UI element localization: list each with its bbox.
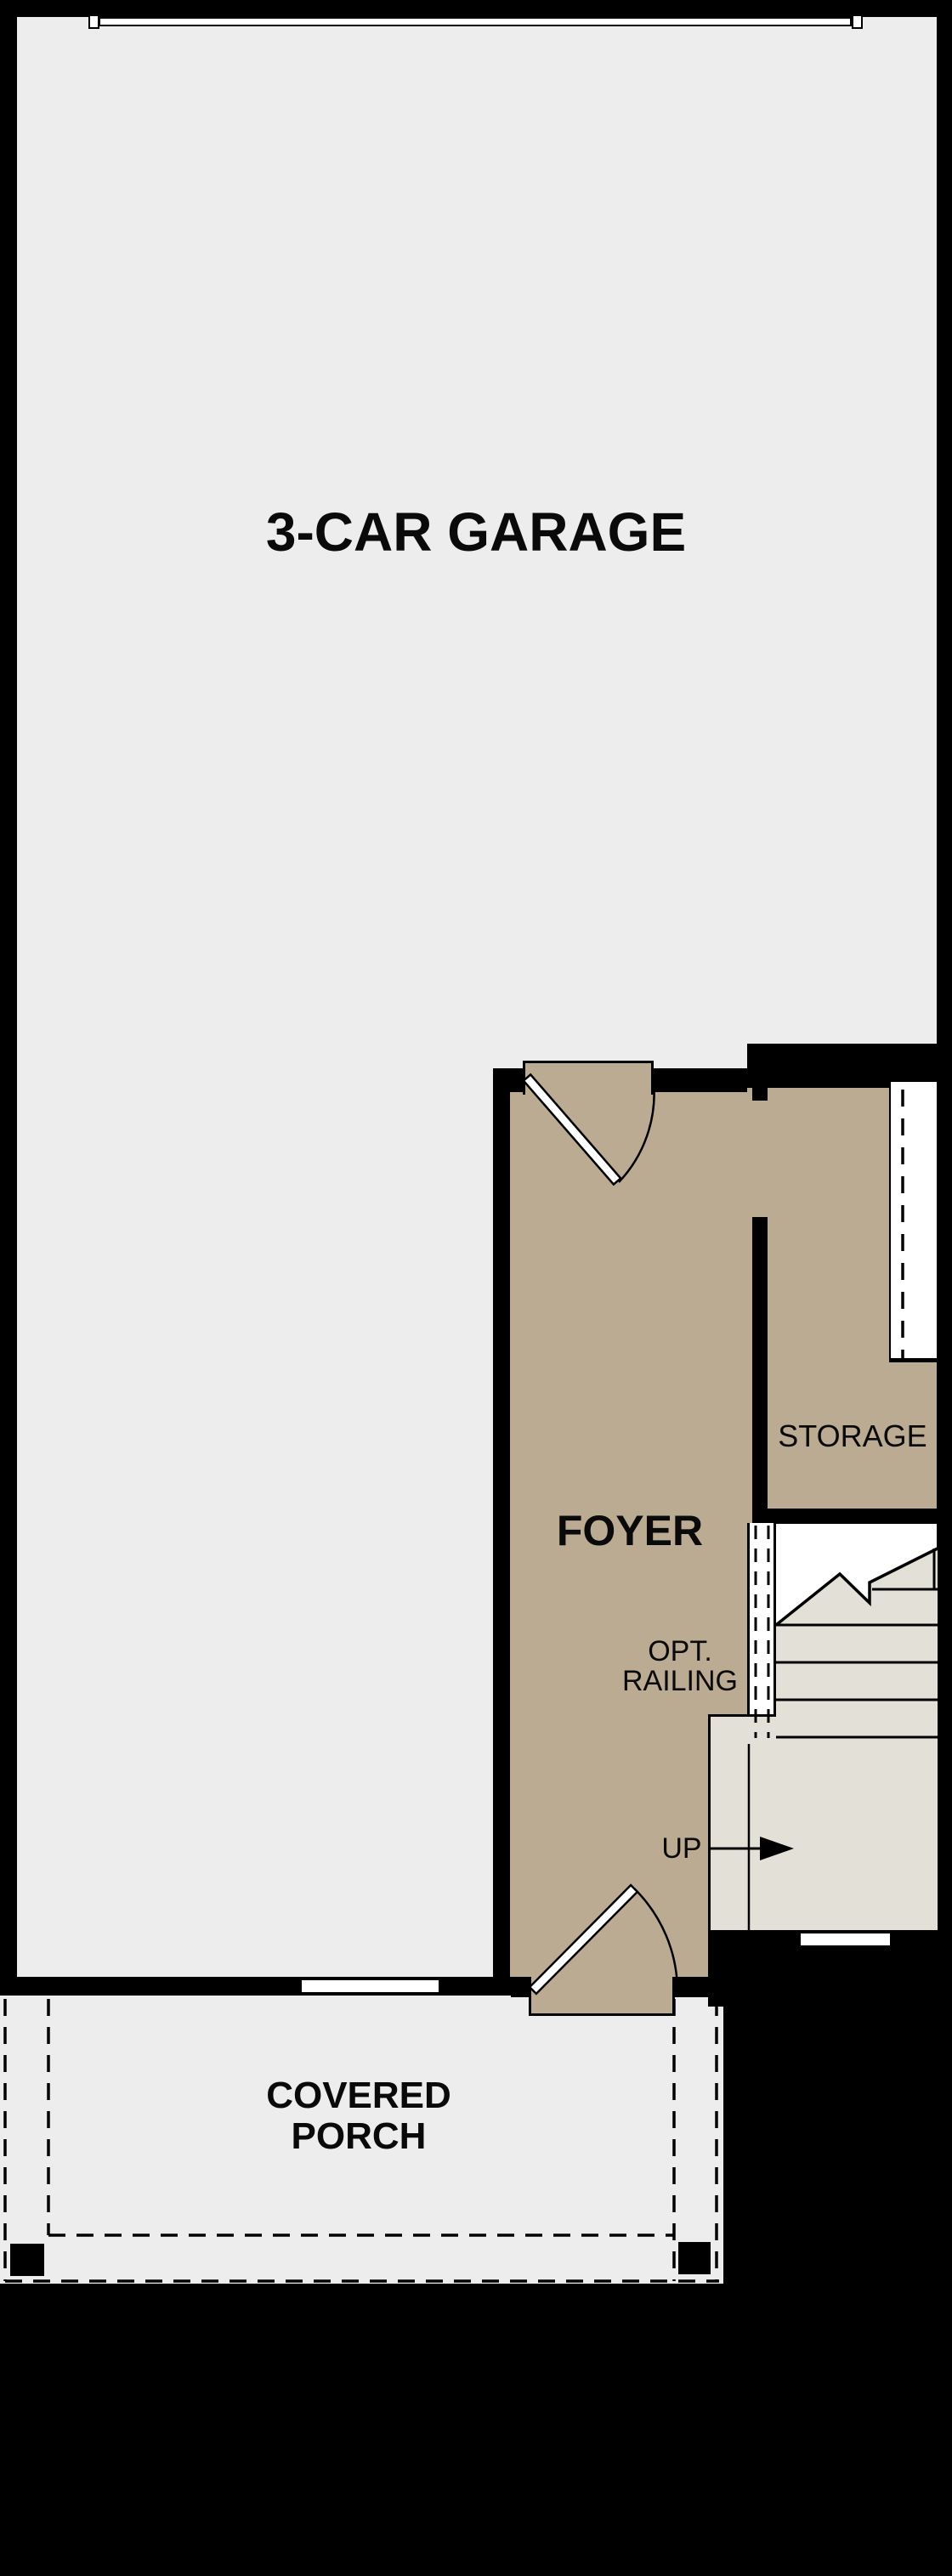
opt-railing-label: OPT. RAILING: [552, 1637, 807, 1696]
garage-front-window: [300, 1979, 440, 1994]
garage-room-floor-lower: [17, 1068, 493, 1977]
stairwell-floor: [768, 1524, 937, 1930]
covered-porch-label-line1: COVERED: [189, 2075, 529, 2116]
floorplan-canvas: 3-CAR GARAGE FOYER STORAGE OPT. RAILING …: [0, 0, 952, 2576]
top-exterior-wall: [0, 0, 952, 17]
garage-entry-door-threshold: [523, 1061, 654, 1095]
foyer-storage-wall: [752, 1217, 768, 1509]
foyer-storage-wall-stub: [752, 1082, 768, 1101]
covered-porch-label: COVERED PORCH: [189, 2075, 529, 2157]
front-door-threshold: [529, 1977, 675, 2016]
right-wall-opening: [889, 1082, 937, 1362]
foyer-label: FOYER: [502, 1508, 757, 1554]
garage-label: 3-CAR GARAGE: [51, 501, 901, 563]
garage-door-jamb-left: [88, 14, 99, 29]
porch-post-left: [10, 2244, 44, 2276]
left-exterior-wall: [0, 17, 17, 1996]
storage-bottom-wall: [752, 1509, 952, 1524]
storage-label: STORAGE: [725, 1419, 952, 1453]
opt-railing-label-line1: OPT.: [552, 1637, 807, 1667]
garage-door-jamb-right: [852, 14, 863, 29]
garage-foyer-wall-right: [654, 1068, 747, 1092]
right-exterior-wall: [937, 17, 952, 2006]
stairs-front-window: [799, 1932, 892, 1947]
stair-landing: [708, 1714, 778, 1930]
garage-door-panel: [99, 17, 852, 26]
up-label: UP: [597, 1834, 767, 1864]
opt-railing-strip: [747, 1523, 776, 1744]
opt-railing-label-line2: RAILING: [552, 1667, 807, 1696]
covered-porch-label-line2: PORCH: [189, 2116, 529, 2157]
porch-post-right: [678, 2242, 711, 2274]
